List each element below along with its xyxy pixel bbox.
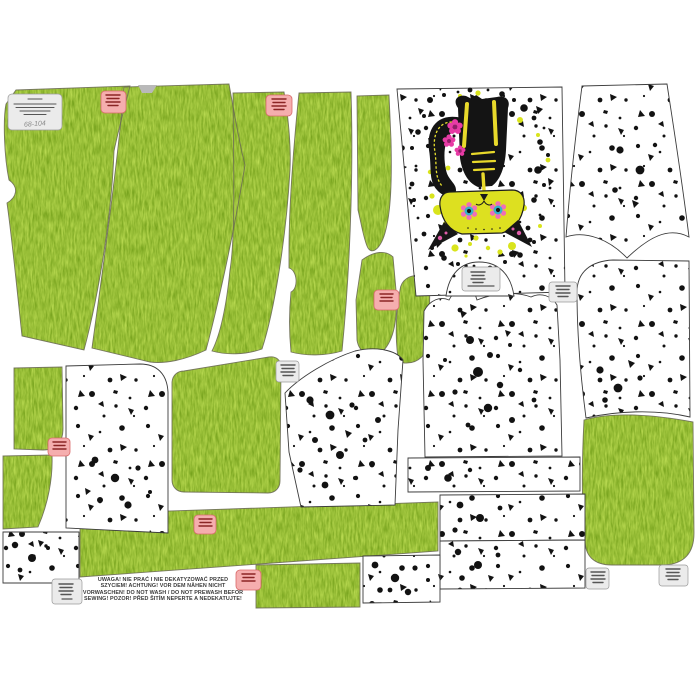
splatter-piece-right bbox=[577, 260, 690, 418]
ear-right-spot bbox=[517, 231, 521, 235]
size-label-7 bbox=[659, 565, 688, 586]
pattern-piece-cuff-2 bbox=[3, 455, 52, 529]
splatter-bodice-left bbox=[285, 349, 403, 507]
size-label-2 bbox=[462, 267, 500, 291]
pattern-piece-pocket bbox=[172, 357, 281, 493]
splatter-piece-trapezoid bbox=[566, 84, 689, 258]
ear-left-spot bbox=[438, 236, 442, 240]
pattern-piece-green-blob bbox=[582, 415, 694, 565]
pattern-piece-band bbox=[256, 563, 360, 608]
pattern-piece-cuff-1 bbox=[14, 367, 63, 450]
pink-label-2 bbox=[266, 95, 292, 116]
size-label-4 bbox=[276, 361, 299, 382]
care-warning-text: UWAGA! NIE PRAĆ I NIE DEKATYZOWAĆ PRZED … bbox=[70, 577, 256, 603]
size-label-main: 68-104 bbox=[8, 94, 62, 130]
splatter-rect-1 bbox=[408, 457, 580, 492]
sewing-pattern-fabric-panel: 68-104 bbox=[0, 0, 700, 700]
size-label-3 bbox=[549, 282, 577, 302]
ear-right-spot2 bbox=[512, 228, 515, 231]
pink-label-1 bbox=[101, 91, 126, 113]
splatter-rect-3 bbox=[440, 540, 585, 589]
splatter-rect-left bbox=[3, 532, 79, 583]
pink-label-5 bbox=[194, 515, 216, 534]
splatter-piece-left bbox=[66, 364, 168, 533]
pink-label-3 bbox=[374, 290, 399, 310]
pattern-piece-trouser-4 bbox=[289, 92, 352, 355]
care-warning-line-4: SEWING! POZOR! PŘED ŠITÍM NEPERTE A NEDE… bbox=[70, 596, 256, 602]
size-label-6 bbox=[586, 568, 609, 589]
splatter-bodice-center bbox=[423, 289, 562, 457]
splatter-rect-2 bbox=[440, 494, 585, 541]
ear-left-spot2 bbox=[445, 232, 448, 235]
pink-label-4 bbox=[48, 438, 70, 456]
